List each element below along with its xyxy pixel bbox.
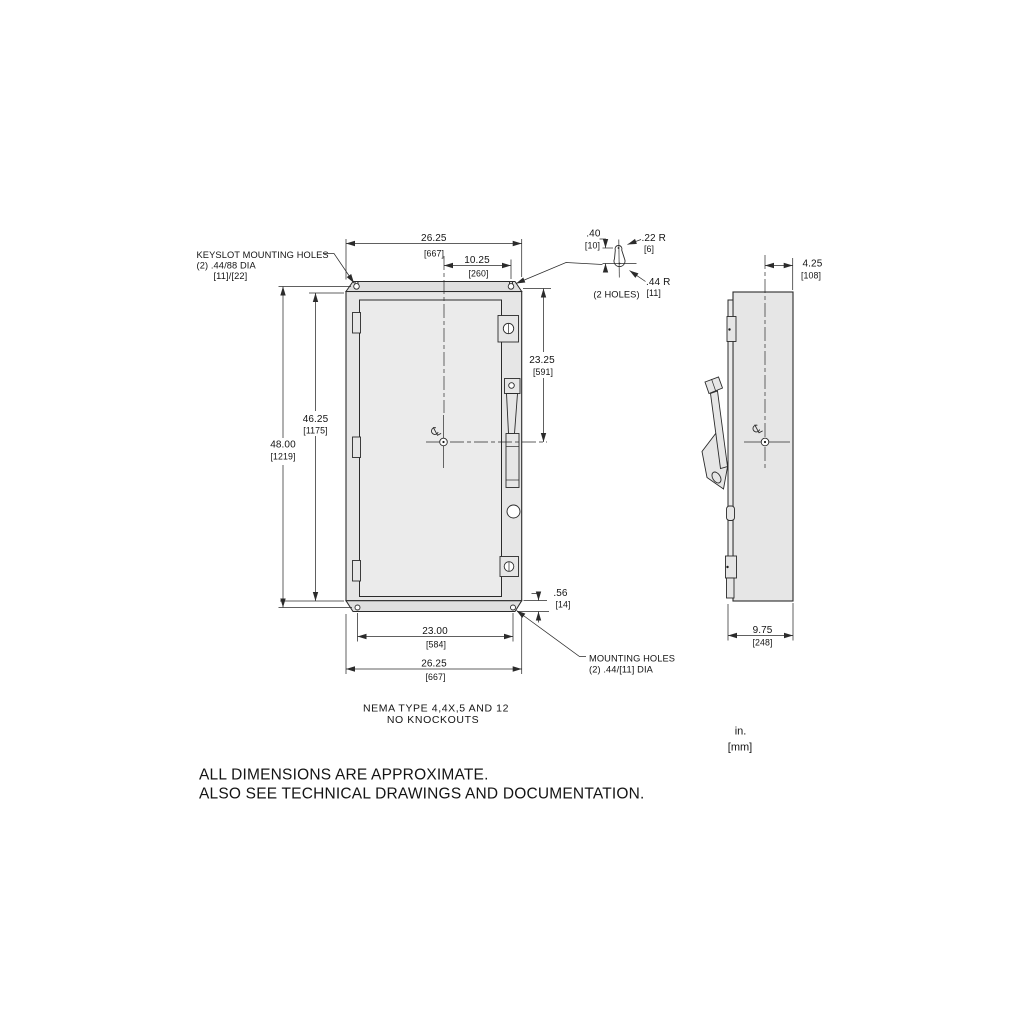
dim-text-mm: [1219]: [270, 452, 295, 462]
units-legend: in. [mm]: [728, 726, 752, 754]
dim-hole-offset: .56 [14]: [517, 588, 571, 623]
cover-screw-top: [498, 316, 519, 343]
disclaimer-line-1: ALL DIMENSIONS ARE APPROXIMATE.: [199, 767, 489, 784]
side-body: [733, 292, 793, 601]
dim-text-mm: [10]: [585, 241, 600, 251]
nema-type-text: NEMA TYPE 4,4X,5 AND 12: [363, 703, 509, 715]
no-knockouts-text: NO KNOCKOUTS: [387, 714, 479, 726]
dim-text: 48.00: [270, 440, 296, 451]
units-mm: [mm]: [728, 742, 752, 754]
front-view: [346, 256, 547, 612]
holes-note-text: (2 HOLES): [593, 290, 639, 300]
dim-text: 23.00: [422, 626, 448, 637]
dim-text-mm: [6]: [644, 244, 654, 254]
label-text: MOUNTING HOLES: [589, 654, 675, 664]
dim-text-mm: [260]: [468, 269, 488, 279]
dim-keyslot-offset: 10.25 [260]: [444, 255, 511, 279]
dim-text: 9.75: [753, 625, 773, 636]
dim-overall-height: 48.00 [1219]: [264, 287, 352, 608]
mounting-holes-label: MOUNTING HOLES (2) .44/[11] DIA: [517, 611, 676, 675]
cover-screw-bottom: [500, 557, 519, 577]
dim-text: 4.25: [803, 259, 823, 270]
dim-text: 46.25: [303, 414, 329, 425]
dim-hole-span: 23.00 [584]: [358, 613, 514, 650]
dim-text-mm: [11]: [647, 288, 661, 298]
disclaimer-line-2: ALSO SEE TECHNICAL DRAWINGS AND DOCUMENT…: [199, 786, 645, 803]
technical-drawing-page: 26.25 [667] 10.25 [260] 48.00 [1219] 46.…: [0, 0, 1024, 1024]
label-text: (2) .44/[11] DIA: [589, 665, 654, 675]
enclosure-door: [360, 300, 502, 597]
side-latch-top: [727, 317, 736, 342]
drawing-canvas: 26.25 [667] 10.25 [260] 48.00 [1219] 46.…: [0, 0, 1024, 1024]
dim-top-width: 26.25 [667]: [346, 233, 522, 280]
dim-text-mm: [248]: [752, 638, 772, 648]
side-latch-bottom: [726, 556, 737, 578]
detail-leader-line: [516, 263, 603, 284]
side-door-edge: [728, 300, 733, 597]
label-text: KEYSLOT MOUNTING HOLES: [197, 250, 329, 260]
dim-text-mm: [1175]: [303, 426, 327, 436]
dim-depth-front: 4.25 [108]: [765, 258, 823, 290]
dim-text: 23.25: [529, 355, 555, 366]
dim-text: 26.25: [421, 233, 447, 244]
dim-text: 26.25: [421, 659, 447, 670]
dim-text: .40: [586, 229, 601, 240]
dim-text: 10.25: [464, 255, 490, 266]
dim-text-mm: [14]: [555, 600, 570, 610]
side-handle: [702, 377, 728, 489]
dim-text: .44 R: [646, 277, 670, 288]
padlock-hole: [507, 505, 520, 518]
dim-text-mm: [108]: [801, 271, 821, 281]
nema-caption: NEMA TYPE 4,4X,5 AND 12 NO KNOCKOUTS: [363, 703, 509, 727]
side-foot-detail: [727, 578, 735, 598]
top-mounting-flange: [346, 282, 522, 292]
dim-text-mm: [667]: [425, 672, 445, 682]
dim-depth-total: 9.75 [248]: [728, 603, 793, 648]
dim-center-height: 23.25 [591]: [523, 289, 562, 443]
disclaimer-notes: ALL DIMENSIONS ARE APPROXIMATE. ALSO SEE…: [199, 767, 645, 803]
side-view: [702, 255, 793, 601]
bottom-mounting-flange: [346, 601, 522, 612]
dim-text: .22 R: [642, 233, 666, 244]
keyslot-mounting-holes-label: KEYSLOT MOUNTING HOLES (2) .44/88 DIA [1…: [197, 250, 355, 283]
dim-text-mm: [591]: [533, 367, 553, 377]
units-inches: in.: [735, 726, 747, 738]
dim-text-mm: [667]: [424, 249, 444, 259]
dim-text: .56: [553, 588, 568, 599]
leader-line: [517, 611, 587, 657]
label-text: (2) .44/88 DIA: [197, 261, 257, 271]
side-hinge-knuckle: [727, 506, 735, 521]
label-text: [11]/[22]: [214, 271, 248, 281]
dim-text-mm: [584]: [426, 640, 446, 650]
